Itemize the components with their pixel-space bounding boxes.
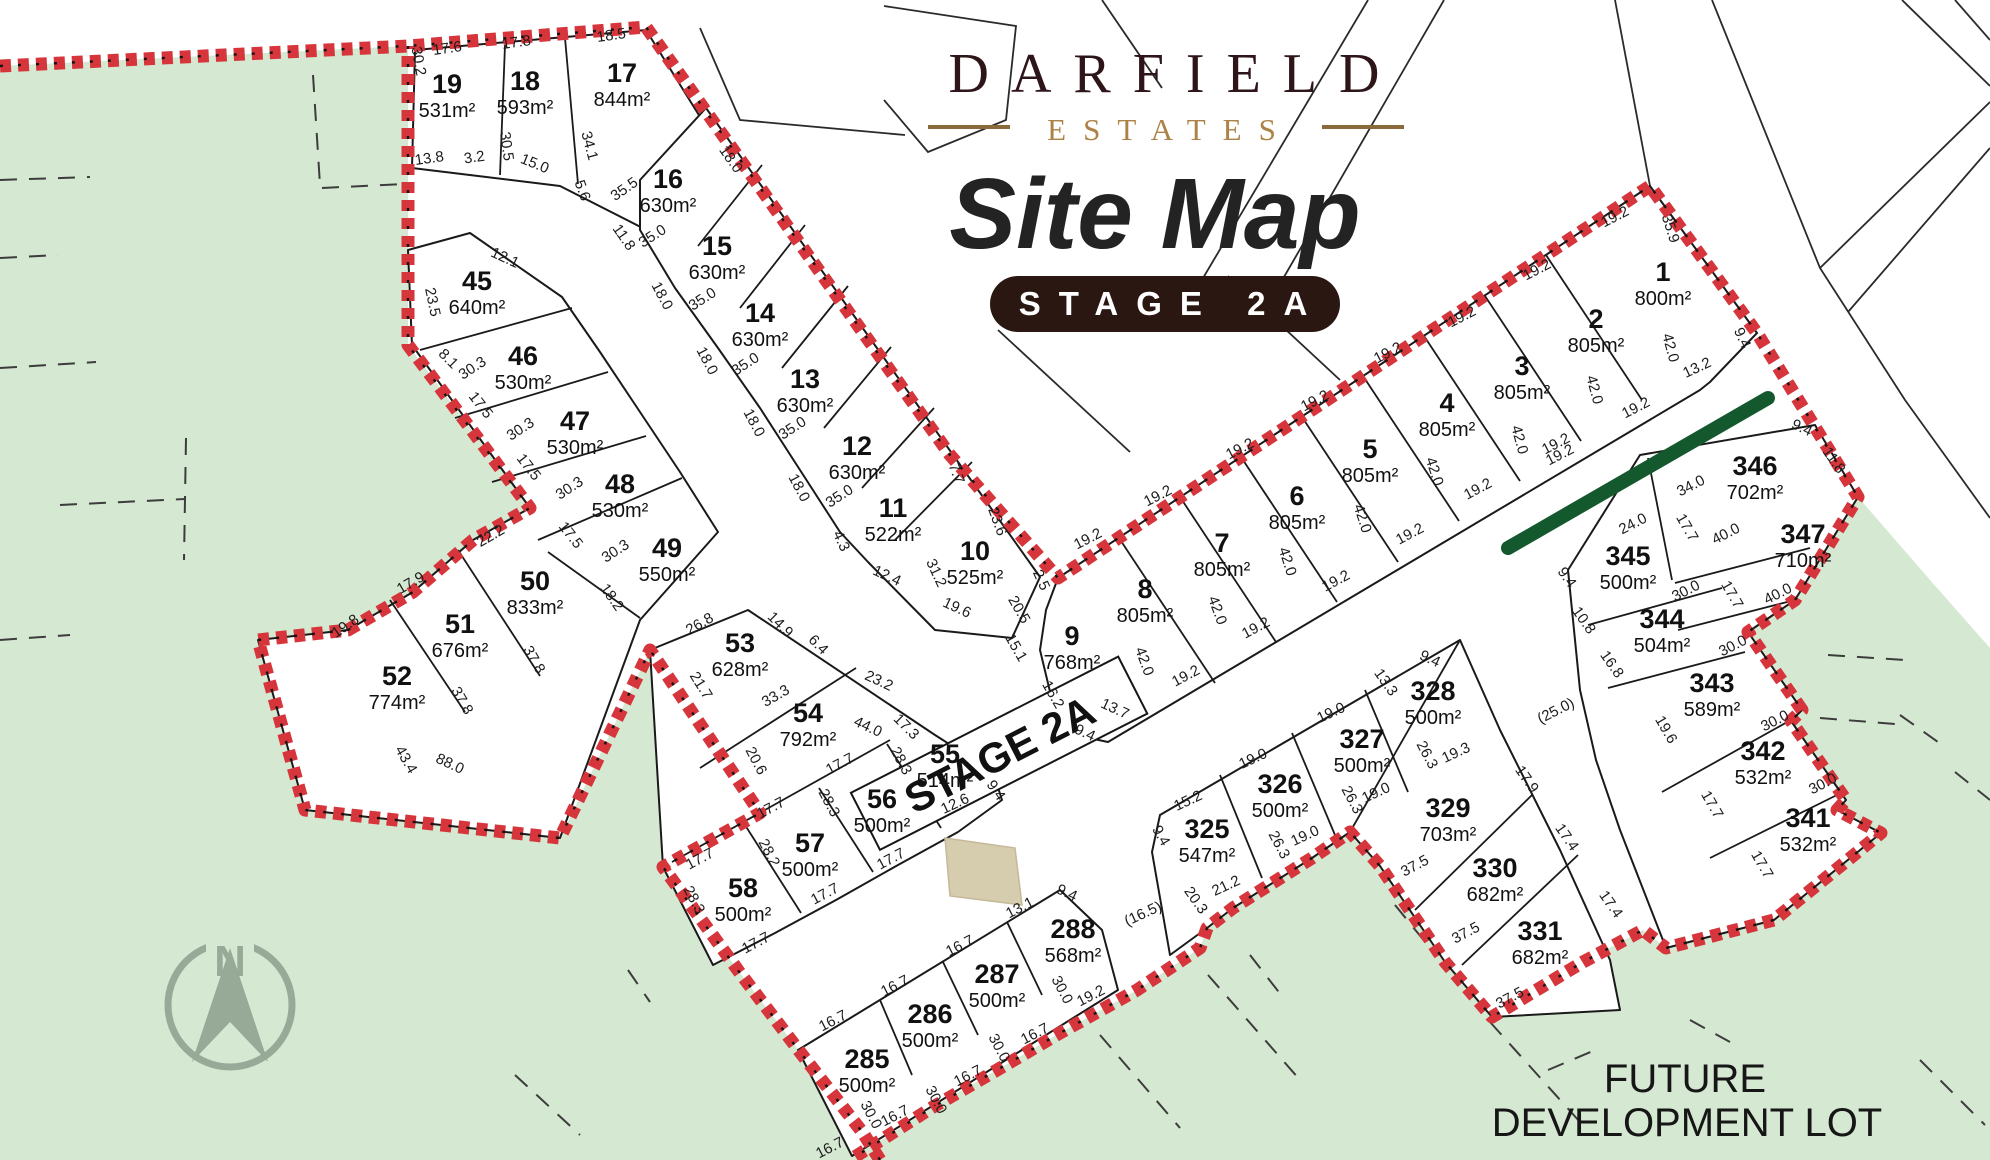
title-block: DARFIELD ESTATES Site Map STAGE 2A [928,43,1404,332]
lot-area: 710m² [1775,550,1832,572]
dimension-label: 11.8 [609,221,639,254]
lot-number: 58 [728,873,758,903]
lot-area: 703m² [1420,824,1477,846]
lot-area: 805m² [1342,465,1399,487]
dimension-label: (25.0) [1535,695,1578,728]
lot-area: 504m² [1634,635,1691,657]
lot-area: 630m² [640,195,697,217]
lot-area: 500m² [902,1030,959,1052]
site-map-canvas: STAGE 2A 1800m²2805m²3805m²4805m²5805m²6… [0,0,1990,1160]
lot-number: 344 [1639,604,1684,634]
lot-area: 702m² [1727,482,1784,504]
lot-number: 9 [1064,621,1079,651]
lot-number: 287 [974,959,1019,989]
lot-number: 347 [1780,519,1825,549]
lot-area: 682m² [1467,884,1524,906]
lot-area: 514m² [917,770,974,792]
lot-number: 331 [1517,916,1562,946]
lot-area: 833m² [507,597,564,619]
lot-area: 500m² [969,990,1026,1012]
lot-number: 54 [793,698,823,728]
lot-number: 6 [1289,481,1304,511]
lot-area: 768m² [1044,652,1101,674]
lot-number: 45 [462,266,492,296]
lot-number: 11 [879,493,908,523]
lot-number: 53 [725,628,755,658]
lot-number: 15 [702,231,732,261]
stage-badge-label: STAGE 2A [1019,285,1326,322]
lot-area: 630m² [689,262,746,284]
lot-area: 530m² [592,500,649,522]
lot-number: 50 [520,566,550,596]
lot-number: 4 [1439,388,1454,418]
compass-north-label: N [214,937,246,986]
dimension-label: 18.0 [693,344,722,378]
lot-area: 525m² [947,567,1004,589]
future-label-line1: FUTURE [1604,1057,1766,1101]
lot-number: 12 [842,431,872,461]
lot-number: 288 [1050,914,1095,944]
lot-area: 500m² [1252,800,1309,822]
dimension-label: 30.2 [408,45,430,77]
lot-number: 14 [745,298,775,328]
lot-number: 2 [1588,304,1603,334]
lot-area: 593m² [497,97,554,119]
lot-number: 3 [1514,351,1529,381]
lot-area: 630m² [829,462,886,484]
brand-subtitle: ESTATES [1047,112,1293,147]
lot-area: 531m² [419,100,476,122]
lot-number: 286 [907,999,952,1029]
lot-area: 522m² [865,524,922,546]
lot-number: 7 [1214,528,1229,558]
lot-number: 47 [560,406,590,436]
lot-area: 774m² [369,692,426,714]
future-label-line2: DEVELOPMENT LOT [1492,1101,1882,1145]
lot-number: 341 [1785,803,1830,833]
site-map-page: STAGE 2A 1800m²2805m²3805m²4805m²5805m²6… [0,0,1990,1160]
lot-area: 805m² [1419,419,1476,441]
brand-title: DARFIELD [949,43,1402,105]
lot-number: 345 [1605,541,1650,571]
lot-number: 325 [1184,814,1229,844]
lot-number: 342 [1740,736,1785,766]
lot-number: 48 [605,469,635,499]
dimension-label: 3.2 [463,148,486,168]
lot-area: 568m² [1045,945,1102,967]
beige-marker [945,838,1022,905]
lot-number: 343 [1689,668,1734,698]
lot-area: 805m² [1117,605,1174,627]
lot-number: 16 [653,164,683,194]
lot-area: 530m² [495,372,552,394]
lot-number: 17 [607,58,637,88]
lot-number: 18 [510,66,540,96]
lot-number: 1 [1655,257,1670,287]
lot-area: 805m² [1269,512,1326,534]
lot-number: 19 [432,69,462,99]
lot-number: 55 [930,739,960,769]
lot-area: 676m² [432,640,489,662]
lot-number: 330 [1472,853,1517,883]
dimension-label: 15.1 [1001,631,1030,665]
lot-number: 56 [867,784,897,814]
lot-number: 10 [960,536,990,566]
lot-number: 346 [1732,451,1777,481]
lot-number: 13 [790,364,820,394]
lot-area: 805m² [1494,382,1551,404]
lot-area: 792m² [780,729,837,751]
lot-number: 52 [382,661,412,691]
lot-area: 630m² [777,395,834,417]
lot-area: 805m² [1194,559,1251,581]
lot-number: 49 [652,533,682,563]
lot-area: 844m² [594,89,651,111]
lot-area: 532m² [1735,767,1792,789]
lot-area: 589m² [1684,699,1741,721]
lot-area: 630m² [732,329,789,351]
lot-number: 46 [508,341,538,371]
lot-number: 57 [795,828,825,858]
lot-area: 500m² [1334,755,1391,777]
lot-area: 500m² [1600,572,1657,594]
lot-number: 327 [1339,724,1384,754]
lot-number: 326 [1257,769,1302,799]
page-title: Site Map [949,158,1360,270]
lot-area: 682m² [1512,947,1569,969]
lot-area: 500m² [854,815,911,837]
dimension-label: (16.5) [1122,898,1165,930]
lot-area: 550m² [639,564,696,586]
lot-area: 500m² [782,859,839,881]
lot-number: 328 [1410,676,1455,706]
lot-number: 8 [1137,574,1152,604]
lot-area: 640m² [449,297,506,319]
lot-area: 530m² [547,437,604,459]
lot-number: 51 [445,609,475,639]
lot-area: 547m² [1179,845,1236,867]
lot-number: 285 [844,1044,889,1074]
dimension-label: 17.4 [1595,888,1626,922]
lot-area: 628m² [712,659,769,681]
lot-area: 800m² [1635,288,1692,310]
lot-number: 5 [1362,434,1377,464]
lot-area: 805m² [1568,335,1625,357]
lot-area: 500m² [839,1075,896,1097]
lot-area: 532m² [1780,834,1837,856]
lot-number: 329 [1425,793,1470,823]
lot-area: 500m² [1405,707,1462,729]
lot-area: 500m² [715,904,772,926]
